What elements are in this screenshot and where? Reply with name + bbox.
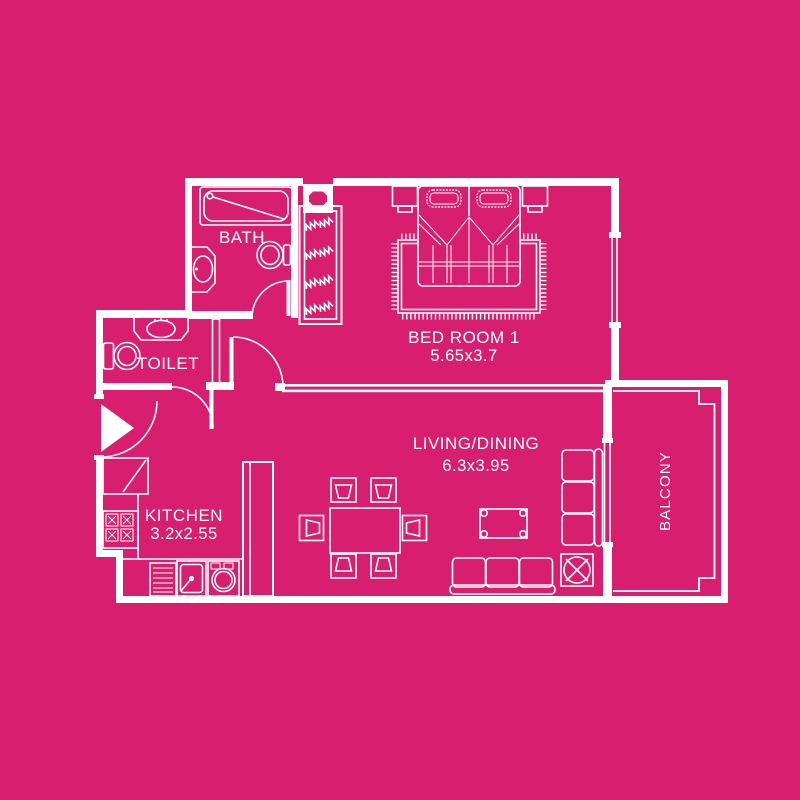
- dining-table-icon: [330, 508, 400, 553]
- toilet-wc-icon: [104, 343, 141, 370]
- entrance-door-icon: [101, 401, 157, 457]
- tall-cabinet-icon: [243, 462, 273, 596]
- floor-plan: BATH TOILET KITCHEN 3.2x2.55 BED ROOM 1 …: [0, 0, 800, 800]
- nightstand-icon: [393, 186, 418, 212]
- sofa-icon: [450, 558, 555, 594]
- bath-door-icon: [252, 280, 291, 317]
- bathtub-icon: [200, 187, 292, 225]
- floor-plan-drawing: [0, 0, 800, 800]
- coffee-table-icon: [480, 509, 527, 538]
- living-furniture: [300, 449, 603, 594]
- dining-chair-icon: [300, 478, 427, 578]
- bath-toilet-icon: [257, 242, 291, 269]
- corner-cabinet-icon: [103, 458, 148, 494]
- plant-icon: [561, 554, 593, 586]
- kitchen-sink-icon: [177, 561, 206, 596]
- drainboard-icon: [150, 563, 176, 596]
- toilet-washbasin-icon: [134, 318, 188, 340]
- stove-icon: [103, 511, 138, 548]
- bath-room: [192, 187, 292, 292]
- living-window: [605, 443, 611, 542]
- bath-washbasin-icon: [192, 247, 215, 292]
- column: [303, 184, 333, 213]
- toilet-door-icon: [172, 387, 214, 429]
- corridor-wall: [213, 319, 220, 385]
- bedroom-window: [612, 238, 617, 322]
- nightstand-icon: [523, 186, 548, 212]
- toilet-room: [104, 318, 189, 370]
- wardrobe-icon: [300, 206, 342, 324]
- double-bed-icon: [418, 186, 520, 286]
- bedroom-door-icon: [230, 337, 284, 387]
- balcony-railing: [613, 391, 715, 591]
- corner-sofa-icon: [562, 449, 603, 546]
- bedroom-furniture: [393, 186, 548, 316]
- washing-machine-icon: [208, 561, 239, 596]
- kitchen-fixtures: [103, 458, 273, 596]
